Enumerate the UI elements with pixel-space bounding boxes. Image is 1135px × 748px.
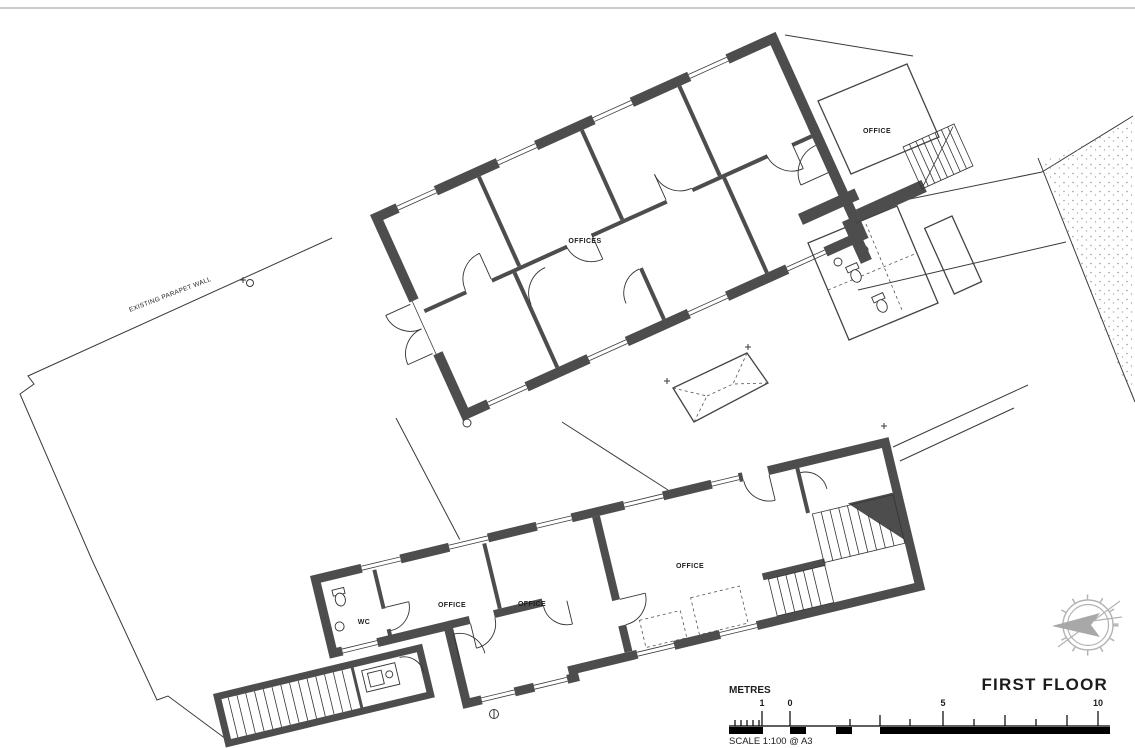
room-label-office-main: OFFICE xyxy=(676,563,704,570)
upper-small-office xyxy=(818,64,939,174)
toilet-icon xyxy=(872,293,890,315)
stair-wing xyxy=(213,644,435,748)
room-label-office-1: OFFICE xyxy=(438,602,466,609)
lower-building xyxy=(310,437,927,737)
scale-tick-5: 5 xyxy=(940,698,945,708)
room-label-office-top-right: OFFICE xyxy=(863,128,891,135)
floor-plan-canvas: OFFICES OFFICE OFFICE OFFICE OFFICE WC E… xyxy=(0,0,1135,748)
scale-tick-1: 1 xyxy=(759,698,764,708)
toilet-icon xyxy=(332,587,348,607)
scale-bar-units: METRES xyxy=(729,685,771,696)
sink-icon xyxy=(334,621,345,632)
room-label-offices: OFFICES xyxy=(568,238,601,245)
sink-icon xyxy=(834,258,842,266)
compass-rose-icon xyxy=(1052,597,1122,653)
stipple-area xyxy=(1038,120,1135,402)
scale-bar-text: SCALE 1:100 @ A3 xyxy=(729,736,813,747)
room-label-wc: WC xyxy=(358,619,370,626)
kitchen-sink-icon xyxy=(362,663,400,692)
room-label-office-2: OFFICE xyxy=(518,601,546,608)
scale-tick-10: 10 xyxy=(1093,698,1103,708)
scale-bar: METRES 1 0 5 10 SCALE 1:100 @ A3 xyxy=(729,685,1110,747)
skylight xyxy=(673,353,768,422)
drawing-title: FIRST FLOOR xyxy=(981,675,1108,694)
terrace-planter xyxy=(925,216,982,294)
site-boundary xyxy=(20,35,1133,742)
scale-tick-0: 0 xyxy=(787,698,792,708)
toilet-icon xyxy=(846,263,864,285)
parapet-wall-label: EXISTING PARAPET WALL xyxy=(128,276,212,314)
upper-building xyxy=(345,2,934,433)
